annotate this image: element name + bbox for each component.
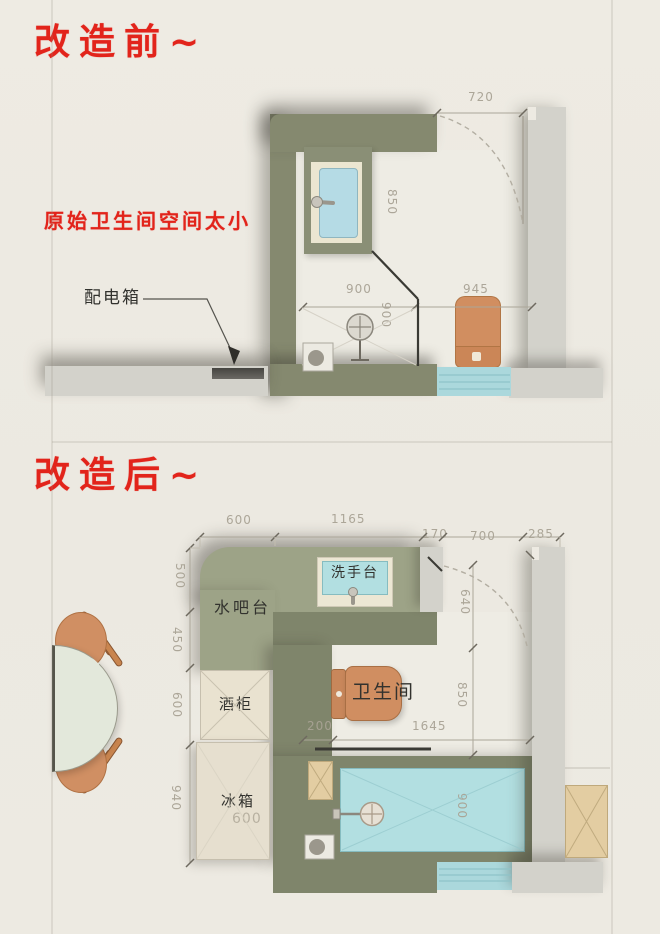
distribution-box: [212, 368, 264, 379]
wall-left-before: [270, 114, 296, 396]
dim-shower-depth-before: 900: [380, 298, 392, 332]
dim-right-zone-before: 945: [463, 283, 489, 295]
wall-l-bar-after: [273, 612, 437, 645]
dim-door-640: 640: [459, 585, 471, 619]
dim-left-450: 450: [171, 623, 183, 657]
dim-door-before: 720: [468, 91, 494, 103]
dim-top-170: 170: [422, 528, 448, 540]
threshold-steps-after: [437, 862, 512, 890]
toilet-flush-button: [336, 691, 342, 697]
bathroom-label: 卫生间: [352, 683, 415, 702]
wall-right-after: [532, 547, 565, 863]
dim-gap-200: 200: [307, 720, 333, 732]
dim-toilet-850: 850: [456, 678, 468, 712]
dim-left-600: 600: [171, 688, 183, 722]
side-cabinet: [565, 785, 608, 858]
renovation-floorplan-poster: 改造前~ 原始卫生间空间太小 配电箱 720 850 900 900 945 改…: [0, 0, 660, 934]
shower-niche: [308, 761, 333, 800]
dim-line-top-after: [196, 533, 564, 547]
wall-bottom-before: [270, 364, 437, 396]
dim-left-940: 940: [170, 781, 182, 815]
wall-bottom-after: [273, 862, 437, 893]
wall-l-leg-after: [273, 645, 332, 758]
dim-top-700: 700: [470, 530, 496, 542]
dim-shower-width-before: 900: [346, 283, 372, 295]
title-after: 改造后~: [34, 458, 208, 494]
dim-fridge-600: 600: [232, 812, 262, 826]
wall-right-notch-after: [532, 547, 539, 560]
dim-left-500: 500: [174, 559, 186, 593]
dim-top-600: 600: [226, 514, 252, 526]
distribution-box-leader: [143, 299, 240, 365]
annotation-bathroom-too-small: 原始卫生间空间太小: [44, 211, 251, 231]
dim-top-1165: 1165: [331, 513, 366, 525]
washbasin-before: [319, 168, 358, 238]
wall-right-notch-before: [528, 107, 536, 120]
distribution-box-label: 配电箱: [84, 290, 141, 307]
wall-right-foot-before: [509, 368, 603, 398]
dim-top-285: 285: [528, 528, 554, 540]
threshold-steps-before: [437, 367, 511, 396]
dim-vanity-before: 850: [386, 185, 398, 219]
dim-length-1645: 1645: [412, 720, 447, 732]
dim-shower-900: 900: [456, 789, 468, 823]
water-heater-switch: [472, 352, 481, 361]
shower-tray: [340, 768, 525, 852]
wine-cabinet-label: 酒柜: [219, 697, 253, 712]
door-jamb-wall: [420, 547, 443, 612]
dim-line-720: [433, 109, 527, 117]
wall-right-foot-after: [512, 862, 603, 893]
title-before: 改造前~: [34, 25, 208, 61]
water-bar-label: 水吧台: [214, 600, 271, 616]
fridge-label: 冰箱: [221, 794, 255, 809]
water-heater-top: [455, 296, 501, 346]
washbasin-label: 洗手台: [331, 566, 379, 580]
wall-right-before: [528, 107, 566, 368]
